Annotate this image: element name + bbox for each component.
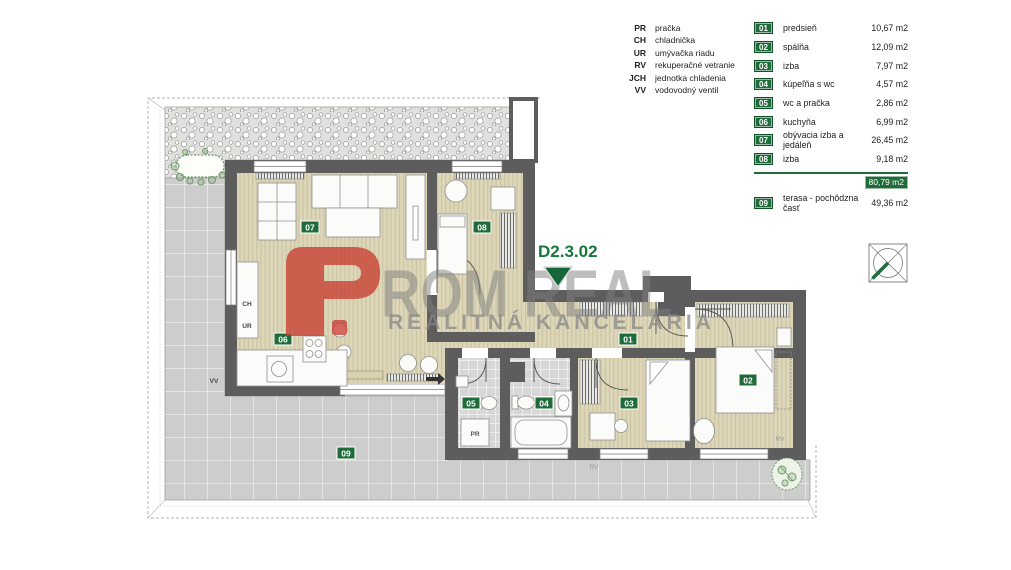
room-list-row: 01predsieň10,67 m2 (754, 19, 908, 38)
room-area: 7,97 m2 (876, 61, 908, 71)
room-list-row: 03izba7,97 m2 (754, 56, 908, 75)
room-area: 12,09 m2 (871, 42, 908, 52)
floorplan-page: CH UR VV PR RV RV 07 08 06 01 02 03 04 0… (0, 0, 1011, 570)
room-list-row: 05wc a pračka2,86 m2 (754, 94, 908, 113)
room-name: wc a pračka (783, 98, 876, 108)
room-name: izba (783, 154, 876, 164)
legend-abbr: CH (608, 34, 646, 46)
room-badge: 04 (754, 78, 773, 90)
room-area: 49,36 m2 (871, 198, 908, 208)
tv-unit (406, 175, 425, 259)
plan-badge-02: 02 (739, 374, 757, 386)
total-area-badge: 80,79 m2 (865, 176, 908, 189)
terrace-row: 09terasa - pochôdzna časť49,36 m2 (754, 194, 908, 213)
vent-label: RV (590, 464, 600, 471)
legend-row: URumývačka riadu (608, 47, 735, 59)
toilet-04 (512, 396, 535, 409)
legend-label: umývačka riadu (655, 47, 715, 59)
room-list-row: 08izba9,18 m2 (754, 150, 908, 169)
room-badge: 08 (754, 153, 773, 165)
room-area: 6,99 m2 (876, 117, 908, 127)
bush-greenery-icon (772, 458, 802, 490)
promreal-logo-icon (283, 242, 383, 338)
room-area: 10,67 m2 (871, 23, 908, 33)
plan-badge-05: 05 (462, 397, 480, 409)
bathtub (511, 417, 571, 448)
dining-table (258, 183, 296, 240)
svg-text:09: 09 (341, 449, 351, 459)
legend-label: vodovodný ventil (655, 84, 718, 96)
chair (400, 355, 417, 372)
fridge-label: CH (242, 301, 252, 308)
room-area: 4,57 m2 (876, 79, 908, 89)
plan-badge-04: 04 (535, 397, 553, 409)
legend-label: pračka (655, 22, 681, 34)
room-badge: 03 (754, 60, 773, 72)
room-list-row: 02spálňa12,09 m2 (754, 38, 908, 57)
room-list: 01predsieň10,67 m2 02spálňa12,09 m2 03iz… (754, 19, 908, 212)
legend-row: RVrekuperačné vetranie (608, 59, 735, 71)
legend-row: PRpračka (608, 22, 735, 34)
unit-marker-triangle-icon (542, 265, 574, 289)
total-row: 80,79 m2 (754, 176, 908, 189)
dishwasher-label: UR (242, 323, 252, 330)
abbreviation-legend: PRpračka CHchladnička URumývačka riadu R… (608, 22, 735, 96)
plan-badge-07: 07 (301, 221, 319, 233)
sink-04 (555, 391, 572, 416)
room-list-row: 06kuchyňa6,99 m2 (754, 112, 908, 131)
plan-badge-09: 09 (337, 447, 355, 459)
vent-shaft (511, 99, 536, 161)
legend-label: rekuperačné vetranie (655, 59, 735, 71)
room-area: 26,45 m2 (871, 135, 908, 145)
room-badge: 05 (754, 97, 773, 109)
legend-abbr: PR (608, 22, 646, 34)
legend-abbr: RV (608, 59, 646, 71)
svg-text:01: 01 (623, 335, 633, 345)
legend-abbr: VV (608, 84, 646, 96)
room-name: terasa - pochôdzna časť (783, 193, 871, 213)
legend-label: chladnička (655, 34, 695, 46)
legend-abbr: JCH (608, 72, 646, 84)
plan-badge-08: 08 (473, 221, 491, 233)
room-badge: 01 (754, 22, 773, 34)
unit-label: D2.3.02 (538, 242, 598, 262)
room-name: izba (783, 61, 876, 71)
washer-label: PR (470, 431, 479, 438)
svg-text:02: 02 (743, 376, 753, 386)
room-name: spálňa (783, 42, 871, 52)
room-name: kúpeľňa s wc (783, 79, 876, 89)
room-badge: 09 (754, 197, 773, 209)
legend-row: CHchladnička (608, 34, 735, 46)
north-arrow-icon (869, 244, 907, 282)
room-name: kuchyňa (783, 117, 876, 127)
watermark-subtitle: REALITNÁ KANCELÁRIA (388, 311, 715, 335)
svg-text:08: 08 (477, 223, 487, 233)
svg-text:03: 03 (624, 399, 634, 409)
room-area: 2,86 m2 (876, 98, 908, 108)
plan-badge-03: 03 (620, 397, 638, 409)
room-badge: 07 (754, 134, 773, 146)
room-list-row: 04kúpeľňa s wc4,57 m2 (754, 75, 908, 94)
legend-row: VVvodovodný ventil (608, 84, 735, 96)
legend-label: jednotka chladenia (655, 72, 726, 84)
svg-text:05: 05 (466, 399, 476, 409)
room-name: predsieň (783, 23, 871, 33)
svg-text:04: 04 (539, 399, 549, 409)
room-badge: 06 (754, 116, 773, 128)
room-list-divider (754, 172, 908, 174)
room-area: 9,18 m2 (876, 154, 908, 164)
vent-label: RV (776, 436, 786, 443)
room-name: obývacia izba a jedáleň (783, 130, 871, 150)
legend-abbr: UR (608, 47, 646, 59)
room-badge: 02 (754, 41, 773, 53)
water-valve-label: VV (210, 378, 219, 385)
room-list-row: 07obývacia izba a jedáleň26,45 m2 (754, 131, 908, 150)
svg-text:07: 07 (305, 223, 315, 233)
legend-row: JCHjednotka chladenia (608, 72, 735, 84)
chair (421, 357, 438, 374)
